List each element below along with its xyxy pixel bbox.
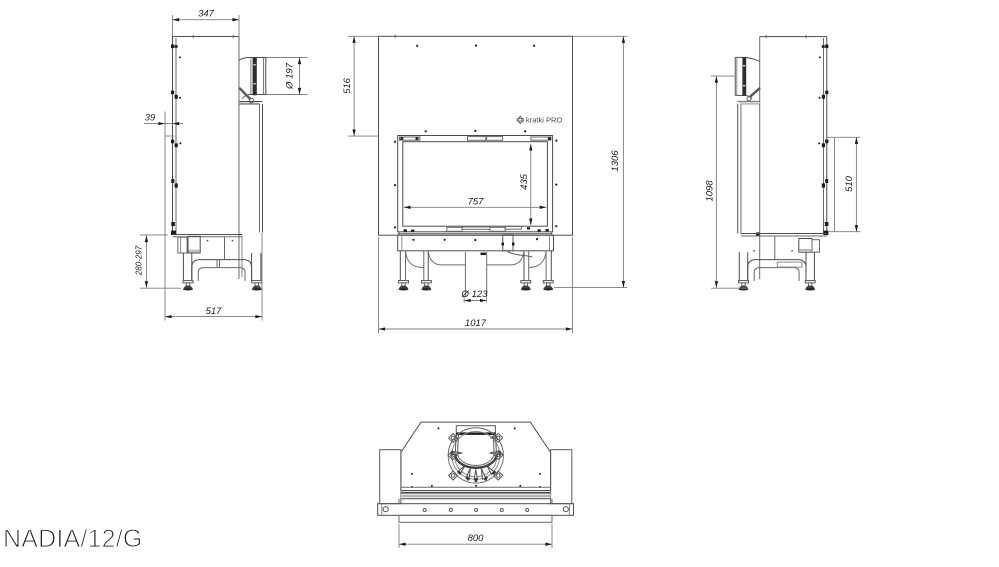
svg-text:517: 517	[206, 306, 223, 317]
svg-text:NADIA/12/G: NADIA/12/G	[3, 525, 143, 553]
svg-text:Ø 197: Ø 197	[285, 62, 296, 90]
svg-text:800: 800	[468, 533, 485, 544]
svg-text:435: 435	[519, 173, 530, 190]
svg-text:516: 516	[342, 77, 353, 94]
svg-text:1017: 1017	[465, 318, 487, 329]
svg-text:kratki PRO: kratki PRO	[526, 116, 562, 125]
svg-text:39: 39	[145, 112, 156, 123]
svg-text:1098: 1098	[705, 180, 716, 202]
svg-text:347: 347	[198, 9, 215, 20]
svg-text:1306: 1306	[610, 150, 621, 172]
svg-text:510: 510	[844, 175, 855, 192]
svg-text:Ø 123: Ø 123	[461, 289, 489, 300]
svg-text:757: 757	[468, 196, 485, 207]
svg-text:280-297: 280-297	[135, 245, 144, 276]
